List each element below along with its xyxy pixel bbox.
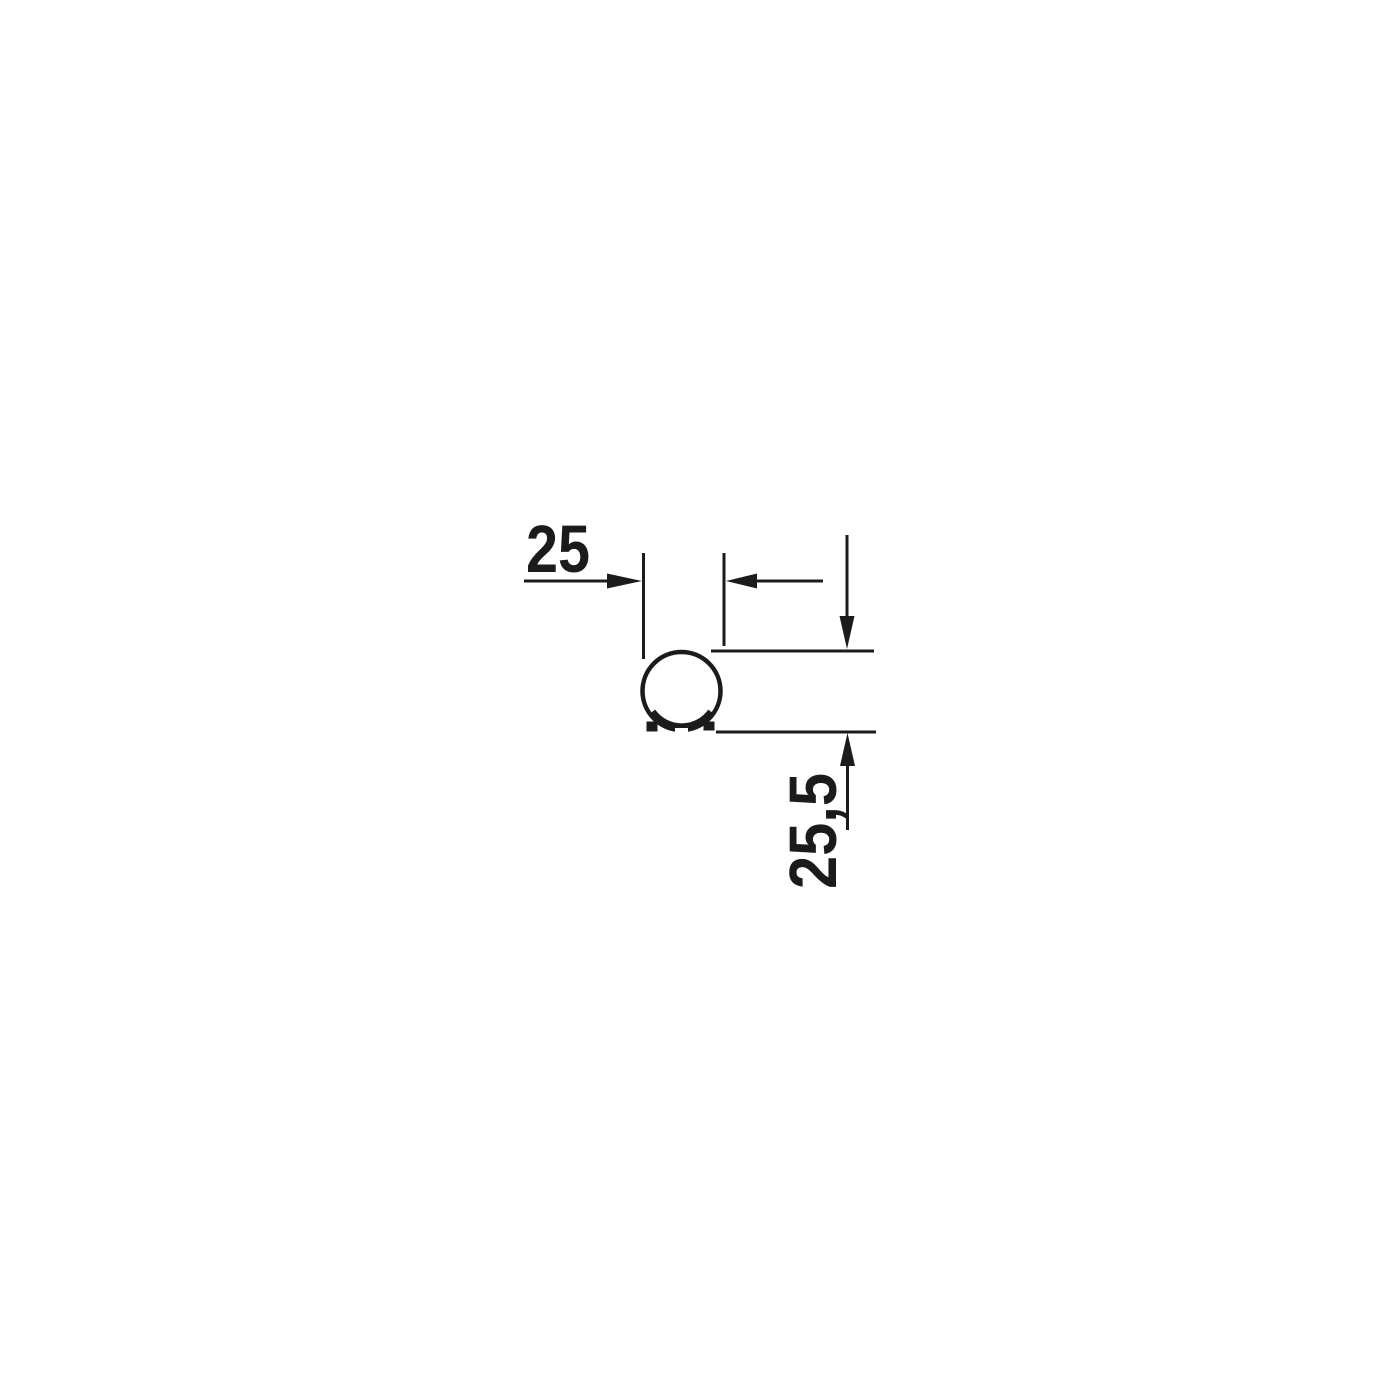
rail-bottom-thick-arc	[652, 712, 712, 727]
rail-cross-section-group	[643, 652, 721, 735]
width-dim-arrowhead-left-pointing	[726, 574, 757, 589]
width-dimension-label: 25	[526, 512, 590, 587]
width-dim-arrowhead-right-pointing	[607, 574, 642, 589]
height-dimension-group: 25,5	[711, 535, 876, 889]
height-dim-arrowhead-down-pointing	[840, 616, 855, 649]
drawing-canvas: 25	[0, 0, 1400, 1400]
width-dimension-group: 25	[524, 512, 823, 659]
rail-bottom-right-tab	[704, 722, 715, 731]
height-dim-arrowhead-up-pointing	[840, 733, 855, 766]
height-dimension-label: 25,5	[776, 773, 851, 889]
rail-bottom-notch	[675, 728, 688, 735]
dimension-drawing: 25	[0, 0, 1400, 1400]
rail-bottom-left-tab	[647, 722, 658, 732]
